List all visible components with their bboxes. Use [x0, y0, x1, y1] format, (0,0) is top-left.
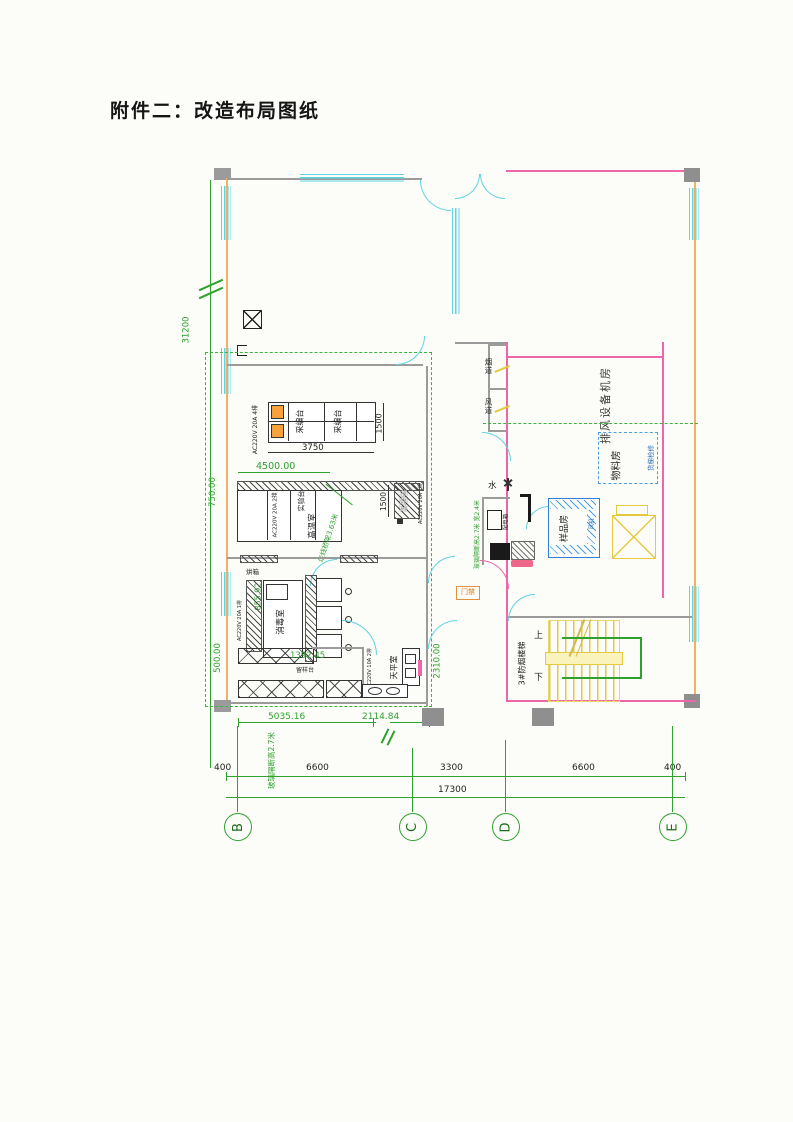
power-spec-label: AC220V 20A 2排 — [269, 492, 281, 538]
dim-table-width: 3750 — [302, 443, 342, 453]
elevator-shaft — [612, 515, 656, 559]
water-label: 水 — [488, 479, 500, 490]
grid-bubble-e: E — [659, 813, 687, 841]
socket-symbol — [271, 424, 284, 438]
corner-column — [684, 168, 700, 182]
dim-line — [238, 472, 330, 473]
wall-segment — [508, 616, 692, 618]
cabinet — [246, 580, 262, 652]
room-label-desk: 采编台 — [292, 403, 308, 440]
elevator-door — [616, 505, 648, 515]
dim-750: 750.00 — [207, 468, 219, 516]
dim-line — [226, 797, 685, 798]
grid-line-b — [237, 726, 238, 812]
power-spec-label: AC220V 10A 2排 — [364, 648, 375, 688]
storage-bench — [326, 680, 362, 698]
grid-bubble-d: D — [492, 813, 520, 841]
bench-label: 实验台 — [396, 484, 410, 516]
note-glass-partition: 玻璃隔断高2.7米 — [264, 724, 279, 796]
power-spec-label: AC220V 20A 4排 — [248, 400, 262, 458]
grid-line-c — [412, 748, 413, 812]
cabinet-inner — [405, 668, 416, 678]
wall-hatch — [340, 555, 378, 563]
shaft-wall — [488, 344, 506, 346]
dim-400-right: 400 — [664, 763, 688, 774]
dim-2114: 2114.84 — [362, 712, 410, 722]
dim-tick — [373, 718, 374, 727]
socket-symbol — [271, 405, 284, 419]
window — [689, 188, 699, 240]
flue-label: 烟道 — [480, 358, 494, 386]
sample-room-panel — [550, 500, 596, 509]
sink-symbol — [368, 687, 382, 695]
door-arc — [480, 174, 505, 199]
door-arc — [428, 620, 457, 649]
dim-total: 17300 — [438, 785, 480, 796]
marker-pink — [511, 560, 533, 567]
editing-desk — [268, 402, 376, 443]
door-arc — [420, 180, 451, 211]
machine-unit — [316, 578, 342, 602]
dim-5035: 5035.16 — [268, 712, 322, 722]
dim-bench-depth: 1500 — [378, 485, 390, 517]
window — [221, 186, 231, 240]
power-spec-label: AC220V 20A 1排 — [234, 595, 244, 645]
small-symbol — [397, 519, 403, 524]
door-arc-magenta — [480, 560, 509, 589]
dim-table-depth: 1500 — [373, 405, 385, 441]
grid-line-d — [505, 740, 506, 812]
freight-elevator-label: 货梯检修 — [644, 436, 656, 480]
sink-symbol — [386, 687, 400, 695]
shaft-wall — [488, 430, 506, 432]
dim-3300: 3300 — [440, 763, 470, 774]
access-control-label: 门禁 — [456, 586, 480, 600]
dim-6600-right: 6600 — [572, 763, 606, 774]
duct-block-solid — [490, 543, 510, 560]
cabinet-inner — [405, 654, 416, 664]
floor-plan-drawing: 31200 AC220V 20A 4排 采编台 采编台 1500 — [0, 0, 793, 1122]
stair-path — [640, 637, 642, 678]
wall-pink-horizontal — [508, 356, 664, 358]
room-label-sample: 样品房 — [554, 510, 572, 546]
bench-divider — [267, 490, 268, 540]
scanned-page: 附件二：改造布局图纸 31200 AC220V 20A 4排 — [0, 0, 793, 1122]
door-arc — [508, 594, 535, 621]
scope-dashed-line — [483, 423, 698, 424]
window — [689, 586, 699, 642]
grid-line-e — [672, 726, 673, 812]
window — [452, 208, 461, 314]
wall-hatch — [240, 555, 278, 563]
machine-unit — [316, 606, 342, 630]
stair-label: 3#防烟楼梯 — [514, 632, 530, 694]
plant-symbol — [502, 478, 514, 492]
dim-tick — [238, 718, 239, 727]
wall-segment — [482, 497, 484, 565]
wall-segment — [426, 366, 428, 706]
wall-segment — [482, 497, 510, 499]
shaft-wall — [488, 388, 506, 390]
dim-500: 500.00 — [212, 634, 224, 682]
wall-black — [520, 494, 531, 497]
dim-1392: 1392.45 — [290, 651, 338, 661]
break-mark — [387, 730, 396, 745]
dim-line — [226, 776, 685, 777]
stair-path — [562, 637, 642, 639]
dim-4500: 4500.00 — [256, 461, 308, 472]
equipment-cabinet-inner — [266, 584, 288, 600]
column-block — [422, 708, 444, 726]
fan-label: 风机 — [586, 512, 596, 536]
sample-table-label: 留样台 — [296, 665, 320, 674]
power-spec-label: AC220V 20A 1排 — [416, 483, 425, 523]
knob-symbol — [345, 588, 352, 595]
wall-black — [528, 494, 531, 522]
air-duct-label: 风道 — [480, 398, 494, 426]
wall-pink-vertical — [662, 342, 664, 598]
stair-path — [562, 677, 642, 679]
stair-landing — [545, 652, 623, 665]
room-label-disinfect: 消毒室 — [271, 600, 289, 644]
wall-segment — [227, 364, 423, 366]
room-label-desk: 采编台 — [330, 403, 346, 440]
room-label-high-temp: 高温室 — [303, 510, 321, 542]
door-arc — [428, 556, 455, 583]
room-label-balance: 天平室 — [386, 652, 401, 682]
wall-pink-top — [506, 170, 694, 172]
wall-pink-segment — [418, 660, 422, 676]
stair-up-label: 上 — [534, 628, 546, 640]
dim-400-left: 400 — [214, 763, 238, 774]
grid-bubble-b: B — [224, 813, 252, 841]
distribution-box-label: 配电箱 — [500, 508, 510, 536]
column-marker-symbol — [243, 310, 262, 329]
sample-room-panel — [550, 545, 596, 554]
duct-block-hatched — [511, 541, 535, 560]
room-label-material: 物料房 — [604, 442, 626, 488]
stair-down-label: 下 — [534, 670, 546, 682]
storage-bench — [238, 680, 324, 698]
dim-6600-left: 6600 — [306, 763, 340, 774]
column-block — [532, 708, 554, 726]
window — [300, 174, 404, 182]
wall-segment — [312, 647, 364, 649]
door-arc — [455, 174, 480, 199]
grid-bubble-c: C — [399, 813, 427, 841]
bench-divider — [290, 490, 291, 540]
dim-overall-height: 31200 — [180, 310, 194, 350]
desk-divider — [268, 421, 374, 422]
dim-line — [238, 722, 376, 723]
